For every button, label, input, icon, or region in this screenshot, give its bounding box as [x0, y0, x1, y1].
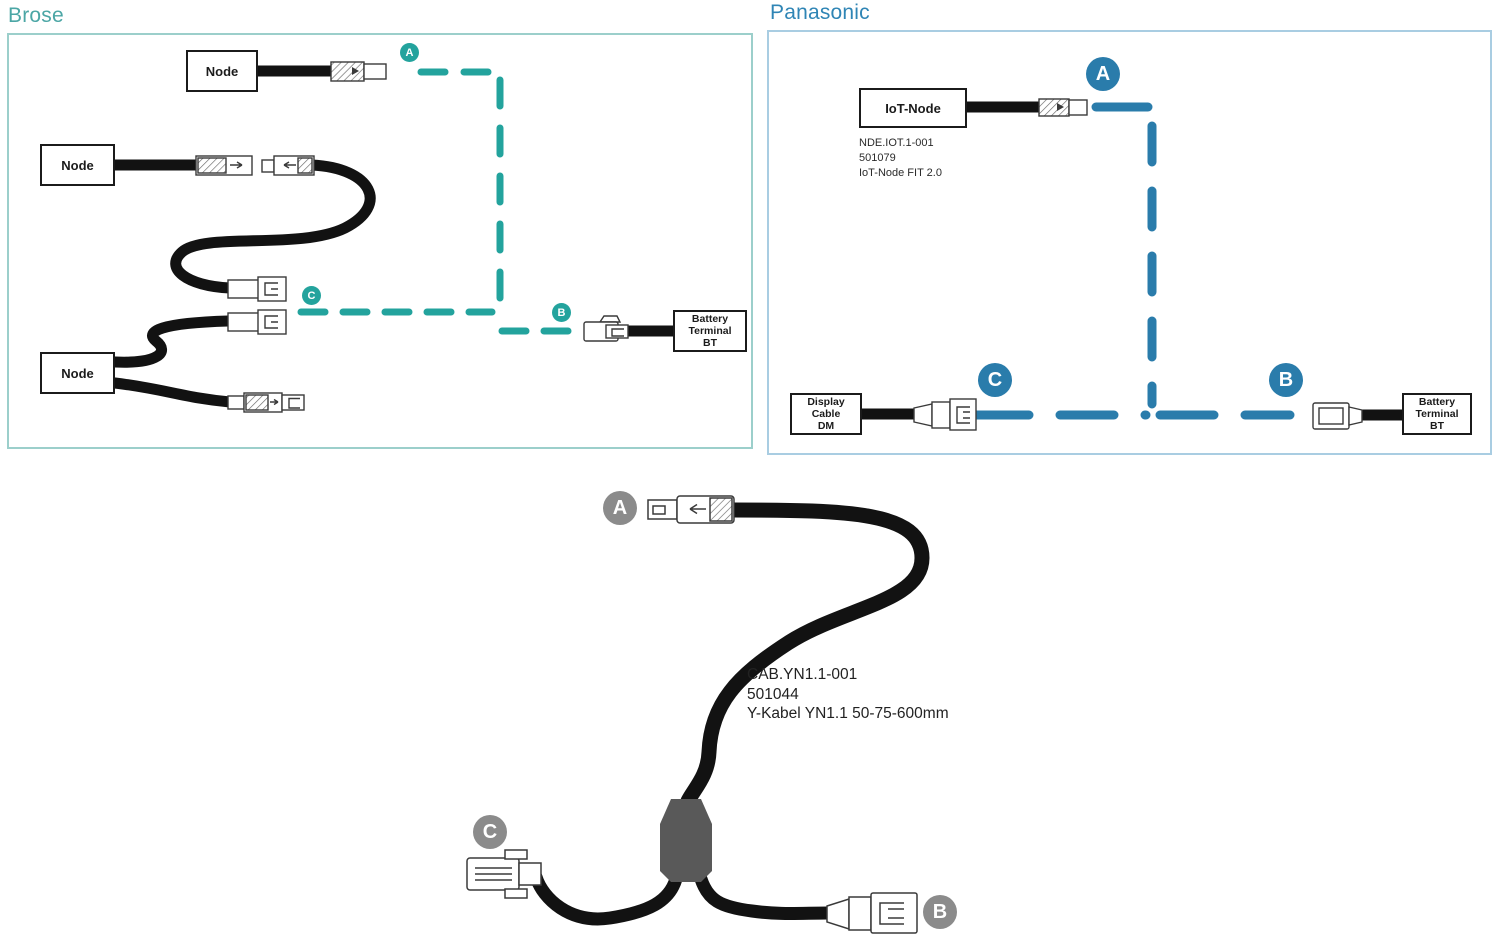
- brose-node2-box: Node: [40, 144, 115, 186]
- iot-part-line1: NDE.IOT.1-001: [859, 136, 942, 151]
- panasonic-iot-node-label: IoT-Node: [885, 101, 941, 116]
- display-line3: DM: [818, 420, 834, 432]
- brose-battery-line3: BT: [703, 337, 717, 349]
- pana-battery-line3: BT: [1430, 420, 1444, 432]
- panasonic-iot-part-numbers: NDE.IOT.1-001 501079 IoT-Node FIT 2.0: [859, 136, 942, 181]
- brose-panel: [7, 33, 753, 449]
- panasonic-iot-node-box: IoT-Node: [859, 88, 967, 128]
- display-line2: Cable: [812, 408, 841, 420]
- brose-marker-b: B: [552, 303, 571, 322]
- panasonic-display-cable-box: Display Cable DM: [790, 393, 862, 435]
- brose-node1-label: Node: [206, 64, 239, 79]
- brose-node3-box: Node: [40, 352, 115, 394]
- brose-battery-line1: Battery: [692, 313, 728, 325]
- brose-title: Brose: [8, 4, 64, 28]
- pana-battery-line1: Battery: [1419, 396, 1455, 408]
- ycable-marker-a: A: [603, 491, 637, 525]
- ycable-part-line2: 501044: [747, 685, 949, 705]
- brose-marker-c: C: [302, 286, 321, 305]
- brose-marker-a: A: [400, 43, 419, 62]
- ycable-a-connector-icon: [648, 496, 734, 523]
- display-line1: Display: [807, 396, 844, 408]
- panasonic-battery-terminal-box: Battery Terminal BT: [1402, 393, 1472, 435]
- iot-part-line2: 501079: [859, 151, 942, 166]
- brose-battery-terminal-box: Battery Terminal BT: [673, 310, 747, 352]
- ycable-b-connector-icon: [827, 893, 917, 933]
- ycable-part-line1: CAB.YN1.1-001: [747, 665, 949, 685]
- brose-node3-label: Node: [61, 366, 94, 381]
- ycable-marker-b: B: [923, 895, 957, 929]
- brose-battery-line2: Terminal: [689, 325, 732, 337]
- pana-battery-line2: Terminal: [1416, 408, 1459, 420]
- ycable-part-numbers: CAB.YN1.1-001 501044 Y-Kabel YN1.1 50-75…: [747, 665, 949, 724]
- panasonic-marker-b: B: [1269, 363, 1303, 397]
- panasonic-marker-a: A: [1086, 57, 1120, 91]
- ycable-part-line3: Y-Kabel YN1.1 50-75-600mm: [747, 704, 949, 724]
- panasonic-marker-c: C: [978, 363, 1012, 397]
- ycable-marker-c: C: [473, 815, 507, 849]
- ycable-splitter-body: [660, 799, 712, 882]
- brose-node2-label: Node: [61, 158, 94, 173]
- iot-part-line3: IoT-Node FIT 2.0: [859, 166, 942, 181]
- wiring-diagram: Brose Panasonic Node Node Node Battery T…: [0, 0, 1500, 950]
- panasonic-title: Panasonic: [770, 1, 870, 25]
- brose-node1-box: Node: [186, 50, 258, 92]
- ycable-c-connector-icon: [467, 850, 541, 898]
